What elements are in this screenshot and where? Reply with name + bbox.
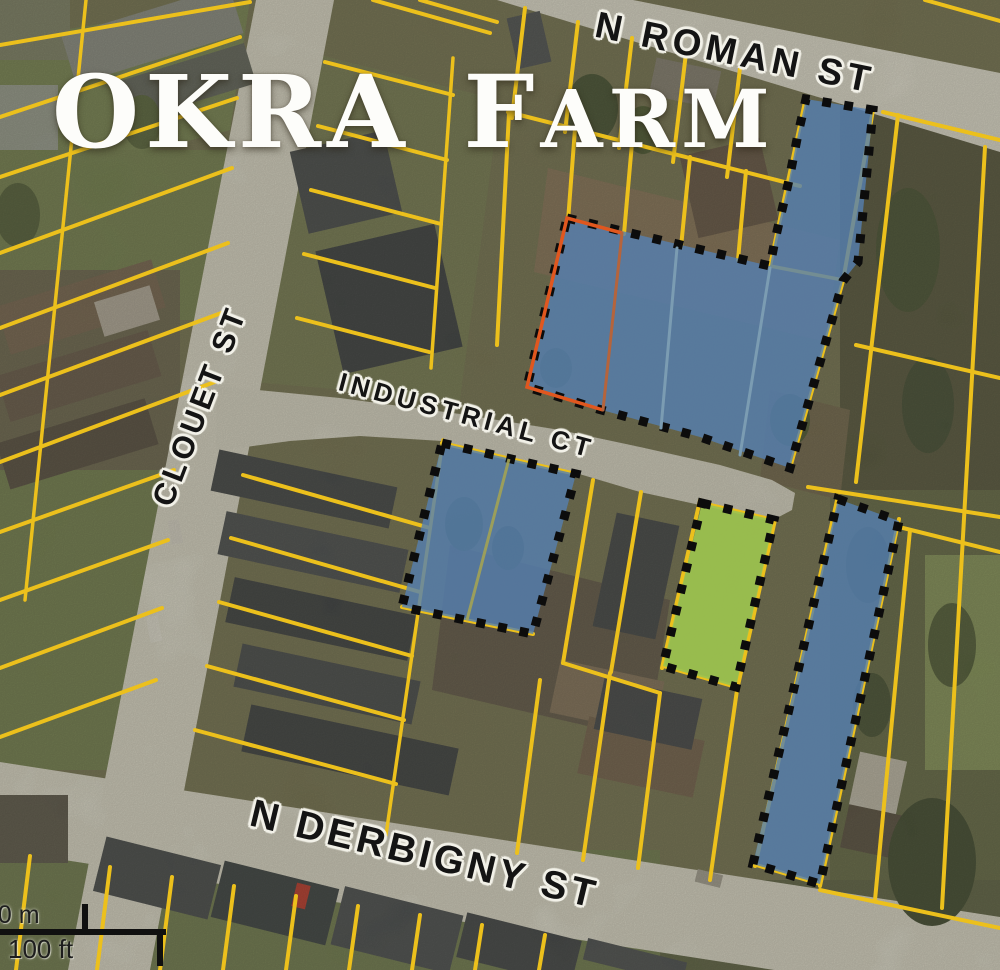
title-smallcaps: ARM <box>541 72 776 166</box>
title-main: OKRA F <box>52 53 541 171</box>
scale-feet-label: 100 ft <box>8 934 73 965</box>
okra-farm-parcel-map: OKRA FARM N ROMAN ST CLOUET ST INDUSTRIA… <box>0 0 1000 970</box>
scale-meters-label: 30 m <box>0 901 40 930</box>
scale-bar-feet-tick <box>157 929 163 966</box>
scale-bar-meters-tick <box>82 904 88 935</box>
page-title: OKRA FARM <box>52 62 776 162</box>
